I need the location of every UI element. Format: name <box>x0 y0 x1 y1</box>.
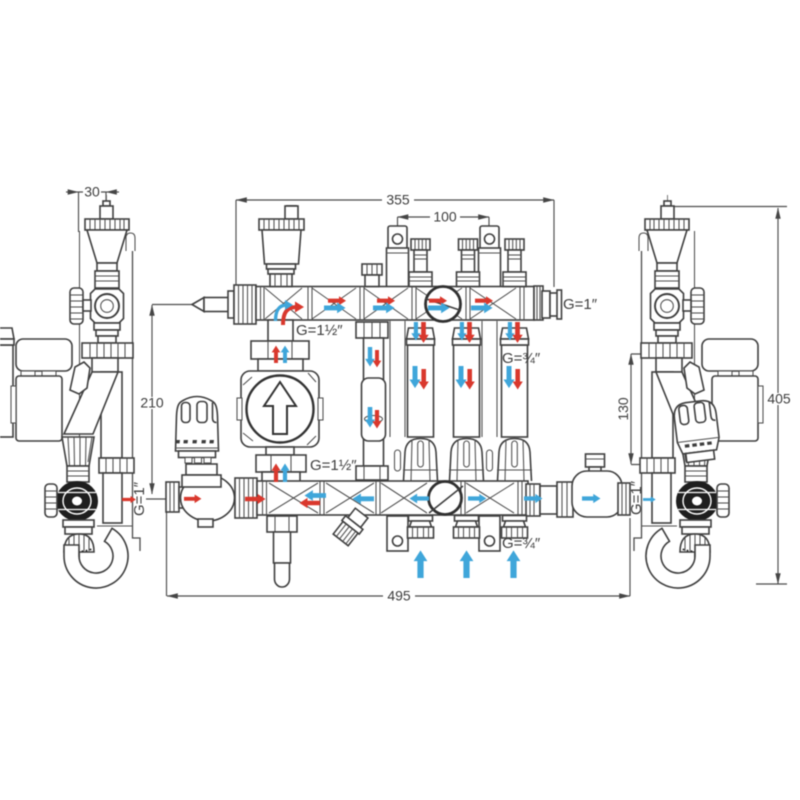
svg-text:30: 30 <box>84 184 100 200</box>
svg-text:G=¾″: G=¾″ <box>502 535 541 552</box>
svg-text:G=1½″: G=1½″ <box>310 457 357 474</box>
svg-text:495: 495 <box>387 588 411 604</box>
svg-text:100: 100 <box>433 209 457 225</box>
svg-text:355: 355 <box>386 192 410 208</box>
svg-text:G=1″: G=1″ <box>563 296 598 313</box>
svg-text:130: 130 <box>615 397 631 421</box>
svg-text:G=1″: G=1″ <box>628 480 645 515</box>
svg-text:G=¾″: G=¾″ <box>502 350 541 367</box>
svg-text:G=1½″: G=1½″ <box>296 322 343 339</box>
svg-text:405: 405 <box>767 391 791 407</box>
svg-text:210: 210 <box>140 395 164 411</box>
